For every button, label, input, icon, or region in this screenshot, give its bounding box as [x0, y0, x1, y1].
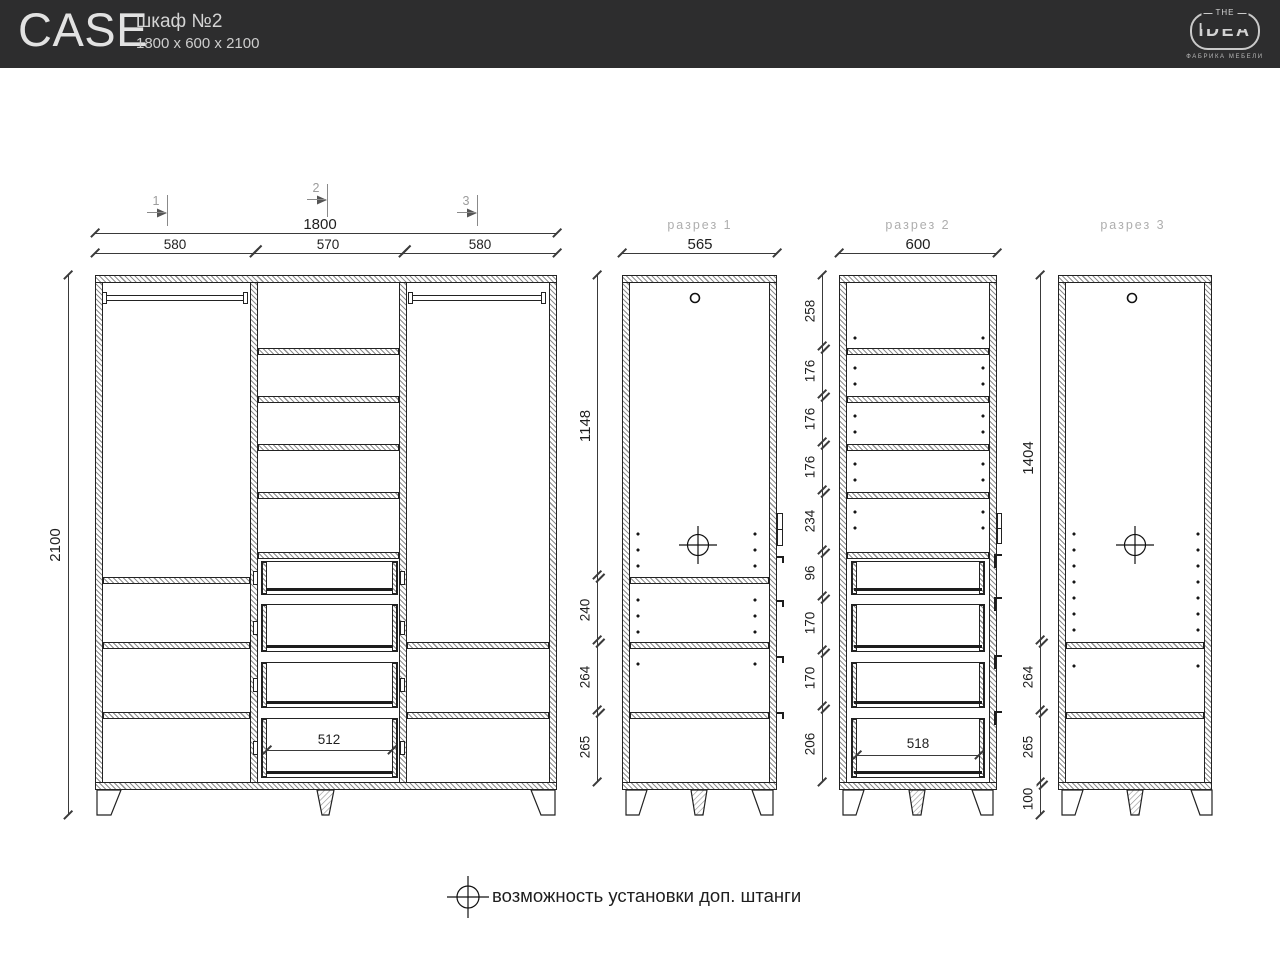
- shelf: [847, 396, 989, 403]
- shelf: [847, 552, 989, 559]
- dim-line: [95, 233, 557, 234]
- dim-height: 96: [804, 562, 819, 583]
- pin-holes: [981, 500, 985, 532]
- vector-overlay: [0, 0, 1280, 959]
- drawer-front-4: [261, 718, 398, 778]
- header-bar: CASE шкаф №2 1800 x 600 x 2100 IDEA THE …: [0, 0, 1280, 68]
- shelf: [847, 348, 989, 355]
- section2-top-panel: [839, 275, 997, 283]
- dim-height: 258: [804, 297, 819, 326]
- drawer-bracket: [994, 711, 996, 725]
- pin-holes: [853, 326, 857, 342]
- dim-col-width-3: 580: [466, 238, 495, 253]
- dim-line: [95, 253, 557, 254]
- logo-top-text: THE: [1202, 0, 1249, 29]
- pin-holes: [853, 452, 857, 484]
- dim-height: 176: [804, 357, 819, 386]
- hanging-rod-left: [106, 295, 245, 301]
- extra-rod-marker-section1: [679, 526, 717, 564]
- dim-height: 100: [1022, 785, 1037, 814]
- section-marker-line: [147, 212, 166, 213]
- pin-holes: [753, 652, 757, 668]
- section3-bottom-panel: [1058, 782, 1212, 790]
- rod-end-cap: [102, 292, 107, 304]
- extra-rod-marker-section3: [1116, 526, 1154, 564]
- dim-height: 170: [804, 664, 819, 693]
- dim-col-width-2: 570: [314, 238, 343, 253]
- brand-title: CASE: [18, 2, 148, 57]
- dim-height: 1404: [1021, 438, 1038, 477]
- section1-width: 565: [684, 237, 715, 254]
- legend-crosshair-icon: [447, 876, 489, 918]
- pin-holes: [753, 522, 757, 570]
- section1-back-wall: [622, 282, 630, 783]
- section1-bottom-panel: [622, 782, 777, 790]
- door-handle: [777, 529, 783, 546]
- dim-col-width-1: 580: [161, 238, 190, 253]
- hook: [782, 556, 784, 563]
- section3-title: разрез 3: [1100, 218, 1165, 232]
- drawer-slide: [253, 678, 258, 692]
- drawer-slide: [253, 741, 258, 755]
- pin-holes: [981, 452, 985, 484]
- door-handle: [777, 513, 783, 530]
- section-marker-line: [477, 195, 478, 226]
- section2-back-wall: [839, 282, 847, 783]
- shelf: [258, 396, 399, 403]
- logo-badge: IDEA THE: [1190, 12, 1260, 50]
- shelf: [258, 492, 399, 499]
- pin-holes: [1196, 654, 1200, 670]
- dim-height: 234: [804, 507, 819, 536]
- front-view-legs: [97, 790, 1212, 815]
- shelf: [258, 552, 399, 559]
- section3-top-panel: [1058, 275, 1212, 283]
- pin-holes: [981, 404, 985, 436]
- dim-line: [1040, 275, 1041, 815]
- dim-height: 206: [804, 730, 819, 759]
- section1-title: разрез 1: [667, 218, 732, 232]
- section2-width: 600: [902, 237, 933, 254]
- shelf: [103, 712, 250, 719]
- front-partition-1: [250, 282, 258, 783]
- dim-height: 264: [579, 663, 594, 692]
- hook: [782, 600, 784, 607]
- drawer-side-3: [851, 662, 985, 708]
- shelf: [630, 577, 769, 584]
- front-right-wall: [549, 282, 557, 783]
- drawer-slide: [400, 741, 405, 755]
- section1-front-wall: [769, 282, 777, 783]
- dim-height: 265: [1022, 733, 1037, 762]
- legend-note: возможность установки доп. штанги: [492, 885, 801, 907]
- section3-back-wall: [1058, 282, 1066, 783]
- dim-height: 265: [579, 733, 594, 762]
- dim-height: 176: [804, 405, 819, 434]
- section2-front-wall: [989, 282, 997, 783]
- dim-drawer-width: 512: [315, 733, 344, 748]
- drawer-bracket: [994, 711, 1002, 713]
- hook: [782, 656, 784, 663]
- section-marker-line: [307, 199, 326, 200]
- pin-holes: [853, 356, 857, 388]
- drawing-canvas: CASE шкаф №2 1800 x 600 x 2100 IDEA THE …: [0, 0, 1280, 959]
- shelf: [847, 444, 989, 451]
- section2-title: разрез 2: [885, 218, 950, 232]
- shelf: [407, 712, 549, 719]
- drawer-bracket: [994, 554, 996, 568]
- front-left-wall: [95, 282, 103, 783]
- drawer-front-2: [261, 604, 398, 652]
- drawer-slide: [400, 571, 405, 585]
- rod-end-cap: [408, 292, 413, 304]
- shelf: [407, 642, 549, 649]
- pin-holes: [1072, 522, 1076, 634]
- section3-front-wall: [1204, 282, 1212, 783]
- rod-end-cap: [243, 292, 248, 304]
- drawer-side-2: [851, 604, 985, 652]
- drawer-side-1: [851, 561, 985, 595]
- rod-hole-section1: [691, 294, 700, 303]
- section2-bottom-panel: [839, 782, 997, 790]
- section-marker-1: 1: [153, 194, 160, 208]
- drawer-bracket: [994, 655, 996, 669]
- dim-line: [622, 253, 777, 254]
- door-handle: [997, 513, 1002, 529]
- product-dimensions: 1800 x 600 x 2100: [136, 35, 259, 52]
- dim-height: 264: [1022, 663, 1037, 692]
- drawer-slide: [253, 571, 258, 585]
- pin-holes: [853, 500, 857, 532]
- drawer-bracket: [994, 597, 1002, 599]
- drawer-front-3: [261, 662, 398, 708]
- dim-total-width: 1800: [300, 217, 339, 234]
- drawer-front-1: [261, 561, 398, 595]
- dim-line-height: [68, 275, 69, 815]
- drawer-slide: [253, 621, 258, 635]
- product-name: шкаф №2: [136, 11, 222, 33]
- pin-holes: [636, 652, 640, 668]
- rod-end-cap: [541, 292, 546, 304]
- pin-holes: [981, 356, 985, 388]
- pin-holes: [853, 404, 857, 436]
- dim-height: 240: [579, 596, 594, 625]
- dim-line: [856, 755, 980, 756]
- dim-height: 170: [804, 609, 819, 638]
- pin-holes: [1196, 522, 1200, 634]
- dim-height: 1148: [578, 407, 595, 445]
- door-handle: [997, 528, 1002, 544]
- shelf: [1066, 642, 1204, 649]
- hanging-rod-right: [412, 295, 543, 301]
- factory-logo: IDEA THE ФАБРИКА МЕБЕЛИ: [1186, 6, 1264, 60]
- pin-holes: [636, 522, 640, 570]
- shelf: [103, 642, 250, 649]
- drawer-slide: [400, 678, 405, 692]
- pin-holes: [753, 588, 757, 636]
- pin-holes: [636, 588, 640, 636]
- section-marker-line: [167, 195, 168, 226]
- dim-line: [839, 253, 997, 254]
- dim-drawer-depth: 518: [904, 737, 933, 752]
- section-marker-2: 2: [313, 181, 320, 195]
- drawer-bracket: [994, 554, 1002, 556]
- shelf: [258, 348, 399, 355]
- front-bottom-panel: [95, 782, 557, 790]
- drawer-slide: [400, 621, 405, 635]
- shelf: [258, 444, 399, 451]
- dim-total-height: 2100: [48, 525, 65, 564]
- shelf: [630, 712, 769, 719]
- shelf: [630, 642, 769, 649]
- dim-height: 176: [804, 453, 819, 482]
- pin-holes: [1072, 654, 1076, 670]
- shelf: [1066, 712, 1204, 719]
- hook: [782, 712, 784, 719]
- rod-hole-section3: [1128, 294, 1137, 303]
- front-top-panel: [95, 275, 557, 283]
- drawer-bracket: [994, 597, 996, 611]
- section-marker-line: [457, 212, 476, 213]
- dim-line: [266, 750, 393, 751]
- shelf: [103, 577, 250, 584]
- section1-top-panel: [622, 275, 777, 283]
- shelf: [847, 492, 989, 499]
- section-marker-3: 3: [463, 194, 470, 208]
- drawer-bracket: [994, 655, 1002, 657]
- logo-subtitle: ФАБРИКА МЕБЕЛИ: [1186, 54, 1264, 60]
- front-partition-2: [399, 282, 407, 783]
- pin-holes: [981, 326, 985, 342]
